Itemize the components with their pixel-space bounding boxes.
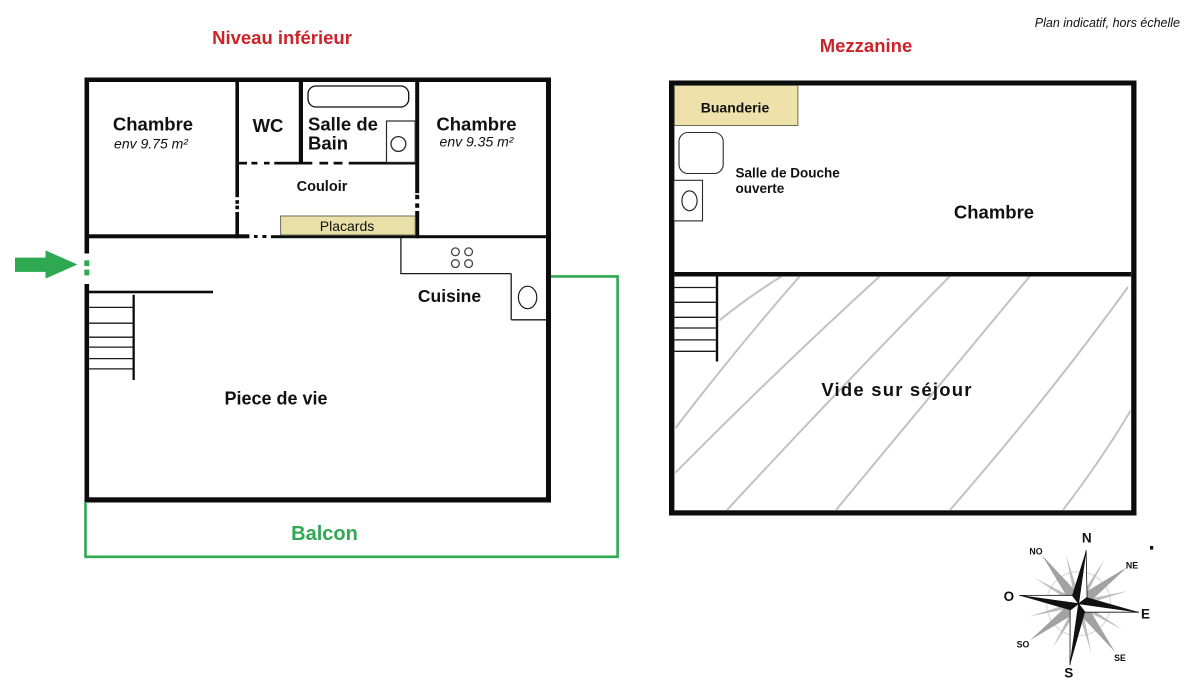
svg-text:E: E (1141, 607, 1150, 622)
svg-text:Vide sur séjour: Vide sur séjour (821, 379, 972, 400)
svg-text:Buanderie: Buanderie (701, 100, 770, 116)
svg-text:Chambre: Chambre (113, 114, 193, 135)
svg-text:SO: SO (1017, 640, 1030, 650)
svg-text:NE: NE (1126, 560, 1138, 570)
svg-text:WC: WC (253, 115, 284, 136)
svg-text:Plan indicatif, hors échelle: Plan indicatif, hors échelle (1035, 16, 1180, 30)
svg-text:Piece de vie: Piece de vie (224, 389, 327, 409)
svg-text:ouverte: ouverte (736, 181, 785, 196)
svg-text:Salle de Douche: Salle de Douche (736, 166, 841, 181)
svg-text:N: N (1082, 531, 1092, 546)
svg-text:Niveau inférieur: Niveau inférieur (212, 27, 352, 48)
svg-text:Placards: Placards (320, 218, 374, 234)
svg-text:S: S (1064, 666, 1073, 681)
svg-text:Salle de: Salle de (308, 114, 378, 135)
svg-text:Mezzanine: Mezzanine (820, 35, 913, 56)
svg-text:NO: NO (1029, 547, 1042, 557)
svg-text:O: O (1004, 589, 1015, 604)
svg-text:Bain: Bain (308, 133, 348, 154)
svg-text:Balcon: Balcon (291, 523, 358, 545)
svg-text:SE: SE (1114, 653, 1126, 663)
svg-text:Chambre: Chambre (436, 114, 516, 135)
svg-text:env 9.75 m²: env 9.75 m² (114, 136, 189, 152)
svg-text:Chambre: Chambre (954, 202, 1034, 223)
svg-text:Couloir: Couloir (297, 179, 348, 195)
svg-text:Cuisine: Cuisine (418, 286, 481, 306)
svg-text:env 9.35 m²: env 9.35 m² (440, 134, 515, 150)
